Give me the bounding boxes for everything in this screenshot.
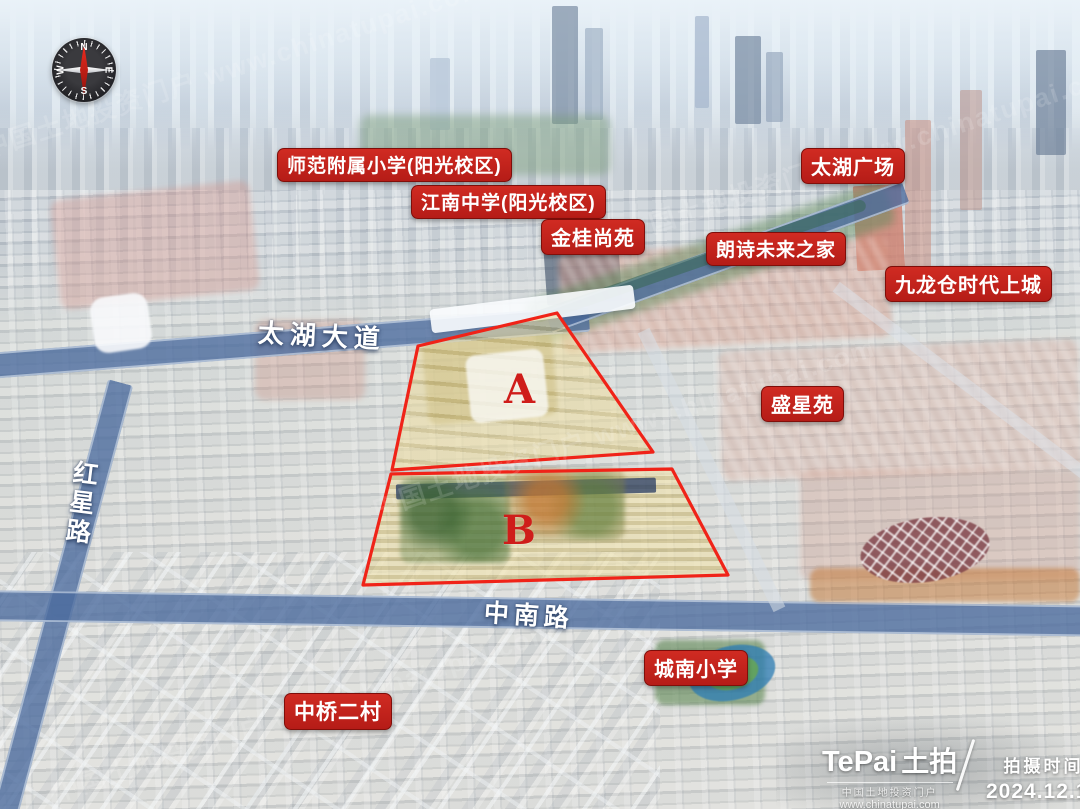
aerial-land-auction-photo: A B 中国土地投资门户 www.chinatupai.com 中国土地投资门户… (0, 0, 1080, 809)
poi-label-jiulongcang-times-city: 九龙仓时代上城 (885, 266, 1052, 302)
brand-wordmark: TePai土拍 (822, 740, 957, 780)
road-label-zhongnan-road: 中南路 (483, 593, 575, 635)
shoot-date-block: 拍摄时间 2024.12.14 (986, 752, 1080, 804)
brand-cn: 土拍 (901, 746, 957, 777)
tepai-brand: TePai土拍 中国土地投资门户 www.chinatupai.com (822, 740, 957, 809)
compass-south-label: S (81, 87, 88, 97)
poi-label-shifan-primary-school: 师范附属小学(阳光校区) (277, 148, 512, 182)
parcel-a-letter: A (504, 370, 535, 410)
poi-label-zhongqiao-ercun: 中桥二村 (284, 693, 392, 730)
tepai-logo-block: TePai土拍 中国土地投资门户 www.chinatupai.com 拍摄时间… (806, 730, 1080, 809)
compass-east-label: E (103, 67, 113, 74)
road-label-taihu-avenue: 太湖大道 (257, 313, 387, 357)
poi-label-chengnan-primary-school: 城南小学 (644, 650, 748, 686)
poi-label-shengxingyuan: 盛星苑 (761, 386, 844, 422)
compass-west-label: W (57, 65, 67, 74)
shoot-date-label: 拍摄时间 (986, 752, 1080, 777)
slash-divider (956, 739, 976, 791)
brand-en: TePai (822, 746, 897, 778)
shoot-date-value: 2024.12.14 (986, 780, 1080, 804)
brand-divider-line (827, 782, 953, 783)
poi-label-jingui-shangyuan: 金桂尚苑 (541, 219, 645, 255)
brand-url: www.chinatupai.com (822, 799, 957, 809)
compass-north-label: N (80, 43, 87, 53)
poi-label-taihu-square: 太湖广场 (801, 148, 905, 184)
poi-label-jiangnan-middle-school: 江南中学(阳光校区) (411, 185, 606, 219)
brand-tagline: 中国土地投资门户 (822, 784, 957, 799)
compass-rose: N E S W (52, 38, 116, 102)
parcel-b-letter: B (502, 511, 536, 551)
poi-label-langshi-future-home: 朗诗未来之家 (706, 232, 846, 266)
